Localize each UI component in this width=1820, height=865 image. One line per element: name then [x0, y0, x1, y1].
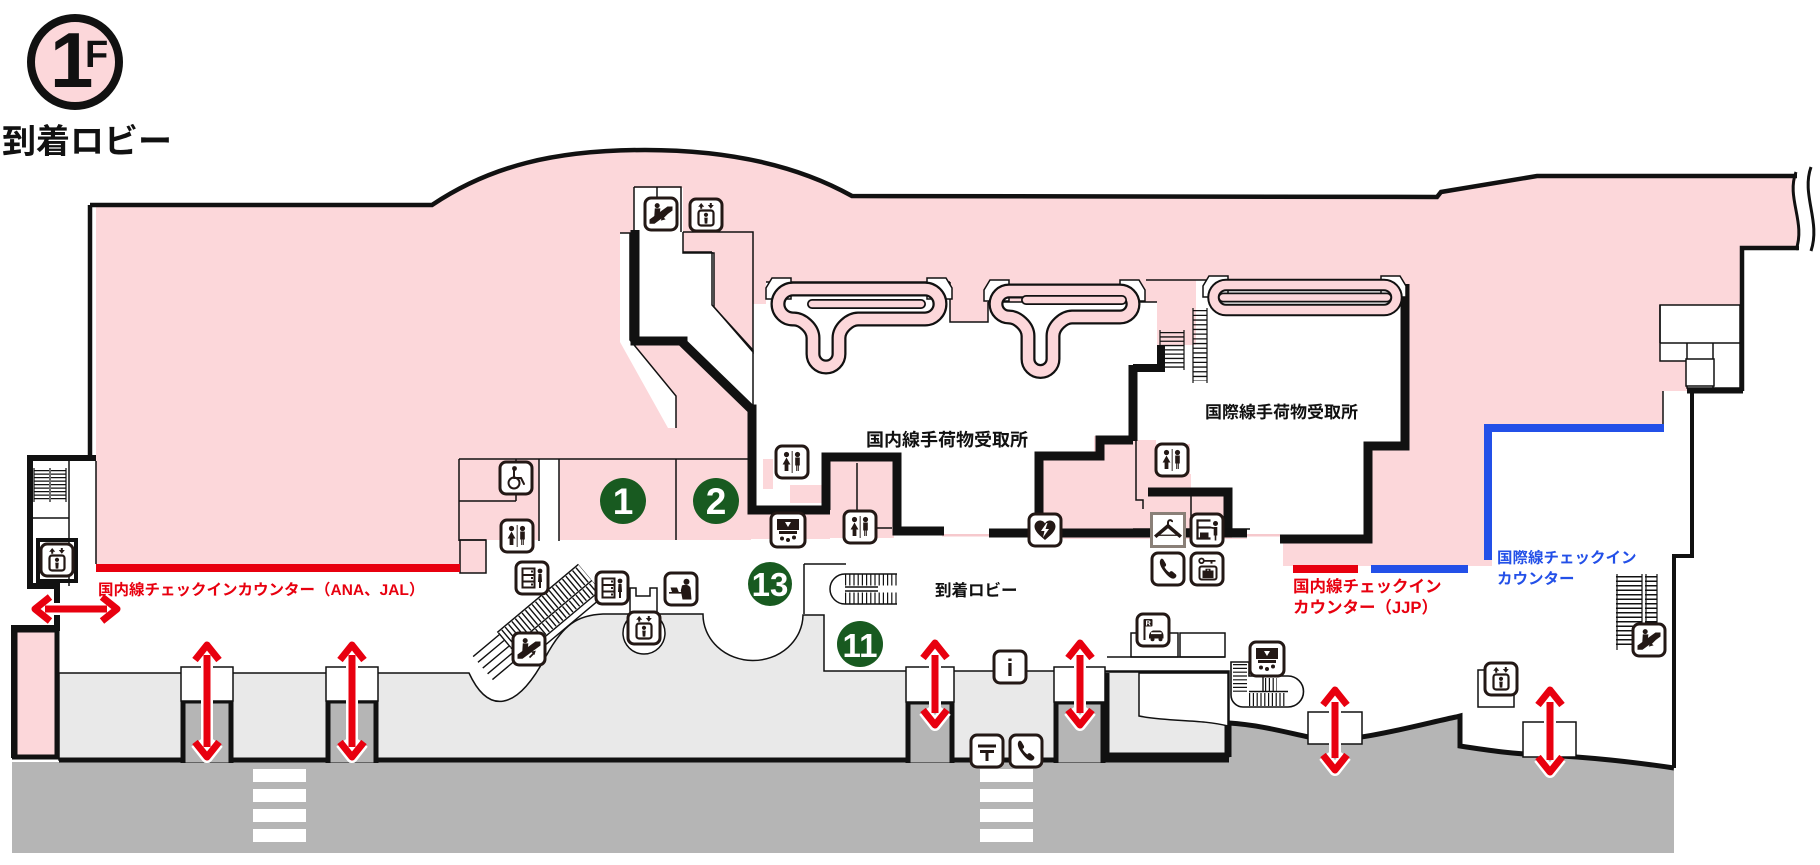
svg-text:1: 1: [613, 481, 634, 522]
svg-text:13: 13: [752, 566, 789, 603]
svg-text:11: 11: [843, 627, 878, 664]
svg-text:2: 2: [706, 481, 727, 522]
svg-text:F: F: [85, 34, 108, 76]
